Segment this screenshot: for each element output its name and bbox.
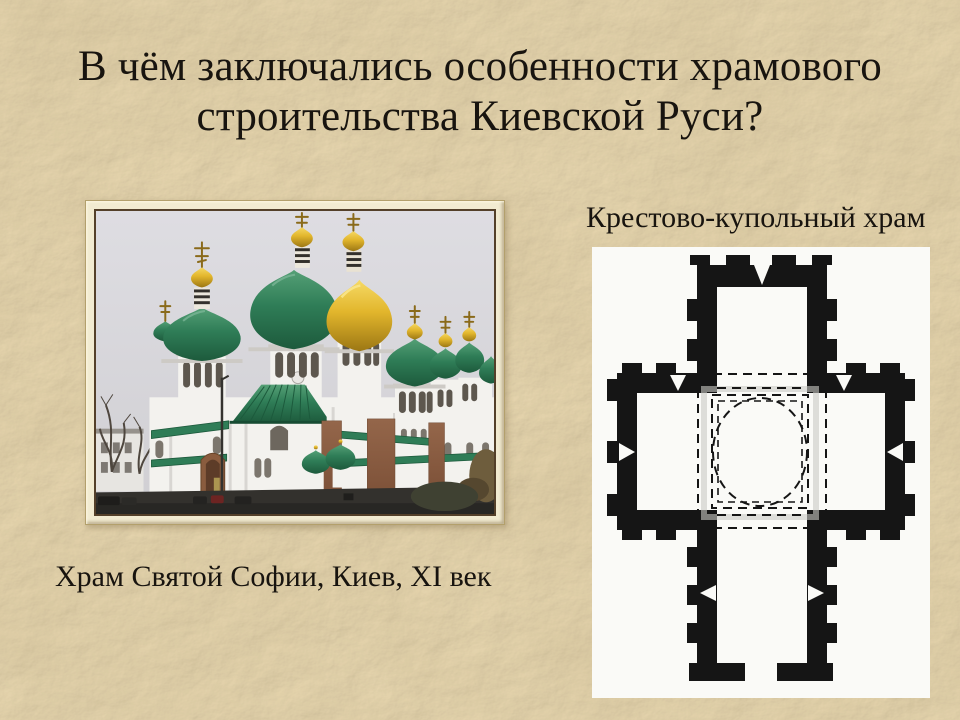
saint-sophia-cathedral-photo: [96, 211, 494, 514]
cross-domed-plan-figure: [592, 247, 930, 698]
photo-frame: [85, 200, 505, 525]
slide-title-line1: В чём заключались особенности храмового: [20, 42, 940, 92]
slide-title-line2: строительства Киевской Руси?: [20, 92, 940, 142]
red-car: [211, 495, 224, 503]
plan-label: Крестово-купольный храм: [586, 201, 926, 235]
cathedral-photo-figure: [85, 200, 505, 525]
presentation-slide: В чём заключались особенности храмового …: [0, 0, 960, 720]
photo-inner-border: [94, 209, 496, 516]
portal-niche: [270, 426, 288, 451]
plan-paper: [592, 247, 930, 698]
photo-caption: Храм Святой Софии, Киев, XI век: [55, 560, 491, 594]
cross-domed-plan: [592, 247, 930, 698]
slide-title: В чём заключались особенности храмового …: [20, 42, 940, 142]
